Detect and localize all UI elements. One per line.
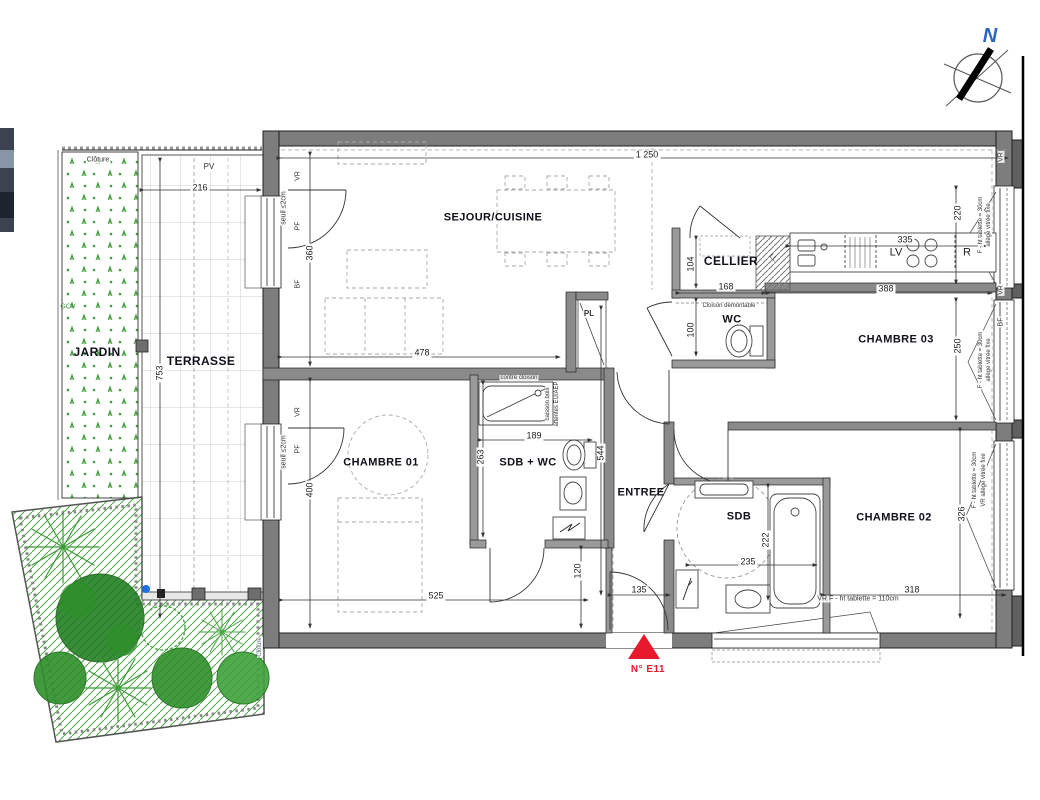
note-f-tablette-ch03b: F - ht tablette = 30cm (978, 331, 984, 390)
note-caisson-bois: caisson bois (545, 386, 551, 421)
room-label-entree: ENTREE (617, 488, 664, 499)
note-f-tablette-ch02: F - ht tablette = 30cm (972, 451, 978, 510)
dim-label-chambre03-388: 388 (876, 285, 895, 294)
dim-label-chambre01-525: 525 (426, 592, 445, 601)
room-label-sejour-cuisine: SEJOUR/CUISINE (444, 213, 543, 224)
room-label-chambre-02: CHAMBRE 02 (856, 513, 932, 524)
dim-label-entrance-135: 135 (629, 586, 648, 595)
compass-north-label: N (983, 26, 997, 46)
dim-label-sdbwc-189: 189 (524, 432, 543, 441)
dim-label-cuisine-335: 335 (895, 236, 914, 245)
dim-label-cellier-104: 104 (687, 254, 696, 273)
note-allege-ch03b: allège vitrée fixe (986, 337, 992, 382)
dim-label-wc-100: 100 (687, 320, 696, 339)
floor-plan-drawing (0, 0, 1040, 800)
tree-icon (217, 652, 269, 704)
room-label-sdb: SDB (727, 512, 751, 523)
sdb-fixtures (677, 478, 820, 613)
note-pf-sejour: PF (295, 221, 302, 232)
note-f-tablette-ch03a: F - ht tablette = 30cm (978, 196, 984, 255)
dim-label-window-250: 250 (954, 336, 963, 355)
note-attentes-eu-aep: attentes EU/AEP (554, 380, 560, 427)
dim-label-sdb-235: 235 (738, 558, 757, 567)
note-vr-sejour: VR (295, 170, 302, 182)
note-gcv: GCV (59, 304, 76, 311)
north-compass-icon (944, 49, 1011, 106)
room-label-terrasse: TERRASSE (167, 355, 236, 367)
note-vr-tablette-bottom: VR F - ht tablette = 110cm (816, 596, 899, 603)
note-vr-allege-ch02: VR allège vitrée fixe (981, 452, 987, 507)
note-vr-chambre01: VR (295, 406, 302, 418)
electrical-panel (676, 570, 698, 608)
dim-label-cellier-168: 168 (716, 283, 735, 292)
dim-label-terrasse-width: 216 (190, 184, 209, 193)
floor-plan-page: { "rooms": ["SEJOUR/CUISINE","CELLIER","… (0, 0, 1040, 800)
dim-label-sdb-222: 222 (762, 530, 771, 549)
dim-label-sdbwc-263: 263 (477, 447, 486, 466)
note-lv-dishwasher: LV (890, 248, 903, 259)
dim-label-sejour-360: 360 (306, 243, 315, 262)
room-label-jardin: JARDIN (73, 346, 120, 358)
dim-label-chambre02-326: 326 (958, 504, 967, 523)
room-label-chambre-03: CHAMBRE 03 (858, 335, 934, 346)
room-label-wc: WC (722, 315, 741, 326)
room-label-cellier: CELLIER (704, 255, 758, 267)
dim-label-chambre02-318: 318 (902, 586, 921, 595)
note-cloture-side: Clôture (257, 636, 263, 657)
dim-label-total-width: 1 250 (634, 151, 661, 160)
note-bf-sejour: BF (295, 279, 302, 290)
dim-label-terrasse-753: 753 (156, 363, 165, 382)
inner-wall-dashes (281, 150, 1008, 630)
note-vr-topright: VR (998, 151, 1005, 163)
blue-dot (142, 585, 150, 593)
guide-lines (613, 148, 652, 630)
note-pl-closet: PL (583, 310, 595, 318)
dim-label-chambre01-400: 400 (306, 480, 315, 499)
tree-icon (34, 652, 86, 704)
dim-label-120: 120 (574, 561, 583, 580)
outer-walls (263, 131, 1023, 648)
note-bf-ch03: BF (998, 317, 1005, 328)
tree-icon (152, 648, 212, 708)
note-vr-ch03: VR (998, 284, 1005, 296)
dim-label-entree-544: 544 (597, 443, 606, 462)
note-seuil-sejour: seuil ≤2cm (281, 190, 288, 225)
dim-label-window-220: 220 (954, 203, 963, 222)
dim-label-sejour-478: 478 (412, 349, 431, 358)
note-pv: PV (203, 163, 216, 171)
note-cloison-demontable: Cloison démontable (701, 303, 756, 309)
room-label-sdb-wc: SDB + WC (499, 458, 556, 469)
note-contre-cloison: contre cloison (499, 375, 538, 381)
note-r-fridge: R (963, 248, 971, 259)
note-cloture-top: Clôture (86, 157, 111, 164)
room-label-chambre-01: CHAMBRE 01 (343, 458, 419, 469)
note-allege-ch03a: allège vitrée fixe (986, 202, 992, 247)
lot-number-label: N° E11 (631, 665, 665, 675)
note-seuil-chambre01: seuil ≤2cm (281, 434, 288, 469)
note-pf-chambre01: PF (295, 444, 302, 455)
wc-toilet (726, 325, 763, 357)
